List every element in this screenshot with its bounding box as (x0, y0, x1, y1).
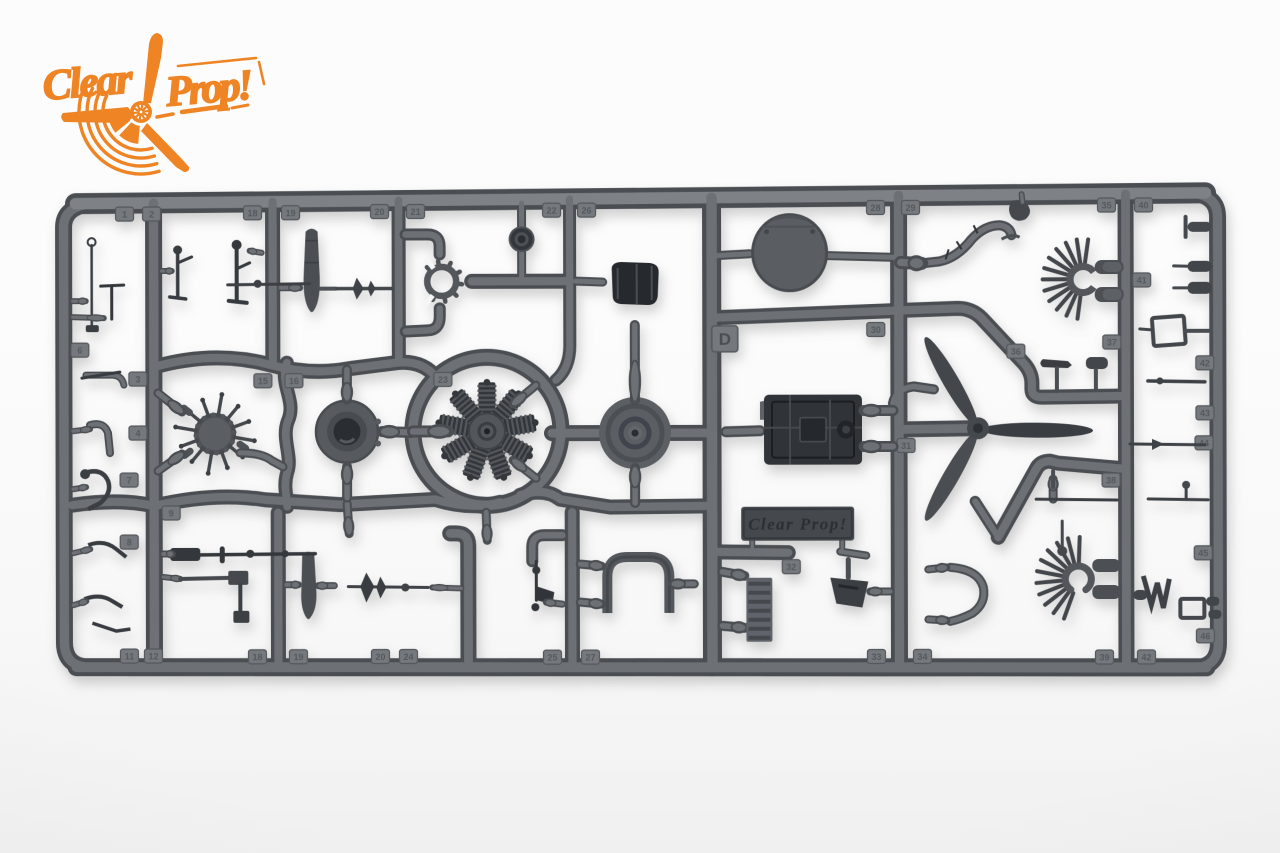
svg-text:4: 4 (135, 429, 140, 439)
svg-text:42: 42 (1141, 652, 1151, 662)
svg-text:1: 1 (122, 210, 127, 220)
svg-text:32: 32 (786, 562, 796, 572)
svg-text:35: 35 (1102, 201, 1112, 211)
svg-text:6: 6 (77, 346, 82, 356)
svg-text:31: 31 (901, 441, 911, 451)
svg-text:43: 43 (1200, 408, 1210, 418)
svg-text:30: 30 (871, 325, 881, 335)
svg-text:16: 16 (289, 376, 299, 386)
svg-text:28: 28 (871, 203, 881, 213)
svg-text:D: D (719, 330, 731, 349)
svg-text:23: 23 (438, 375, 448, 385)
svg-text:11: 11 (125, 652, 135, 662)
svg-text:18: 18 (248, 208, 258, 218)
svg-text:41: 41 (1137, 275, 1147, 285)
svg-text:36: 36 (1011, 347, 1021, 357)
svg-text:34: 34 (917, 652, 927, 662)
svg-text:45: 45 (1198, 548, 1208, 558)
svg-text:8: 8 (127, 538, 132, 548)
svg-text:20: 20 (375, 207, 385, 217)
svg-text:15: 15 (258, 376, 268, 386)
svg-text:39: 39 (1099, 653, 1109, 663)
svg-text:18: 18 (252, 652, 262, 662)
svg-text:21: 21 (411, 207, 421, 217)
svg-text:9: 9 (169, 508, 174, 518)
svg-text:22: 22 (547, 206, 557, 216)
svg-text:7: 7 (127, 476, 132, 486)
svg-text:3: 3 (135, 375, 140, 385)
svg-text:20: 20 (375, 652, 385, 662)
svg-text:Clear Prop!: Clear Prop! (748, 515, 846, 534)
svg-text:29: 29 (906, 203, 916, 213)
svg-text:25: 25 (547, 653, 557, 663)
svg-text:27: 27 (585, 653, 595, 663)
svg-text:42: 42 (1200, 358, 1210, 368)
svg-text:2: 2 (149, 210, 154, 220)
svg-text:26: 26 (582, 206, 592, 216)
svg-text:12: 12 (148, 652, 158, 662)
svg-text:33: 33 (871, 652, 881, 662)
svg-text:40: 40 (1139, 200, 1149, 210)
svg-text:38: 38 (1106, 476, 1116, 486)
svg-text:24: 24 (403, 652, 413, 662)
svg-text:19: 19 (286, 208, 296, 218)
svg-text:37: 37 (1107, 338, 1117, 348)
svg-text:46: 46 (1200, 631, 1210, 641)
svg-text:19: 19 (293, 652, 303, 662)
svg-text:Clear: Clear (41, 55, 136, 110)
